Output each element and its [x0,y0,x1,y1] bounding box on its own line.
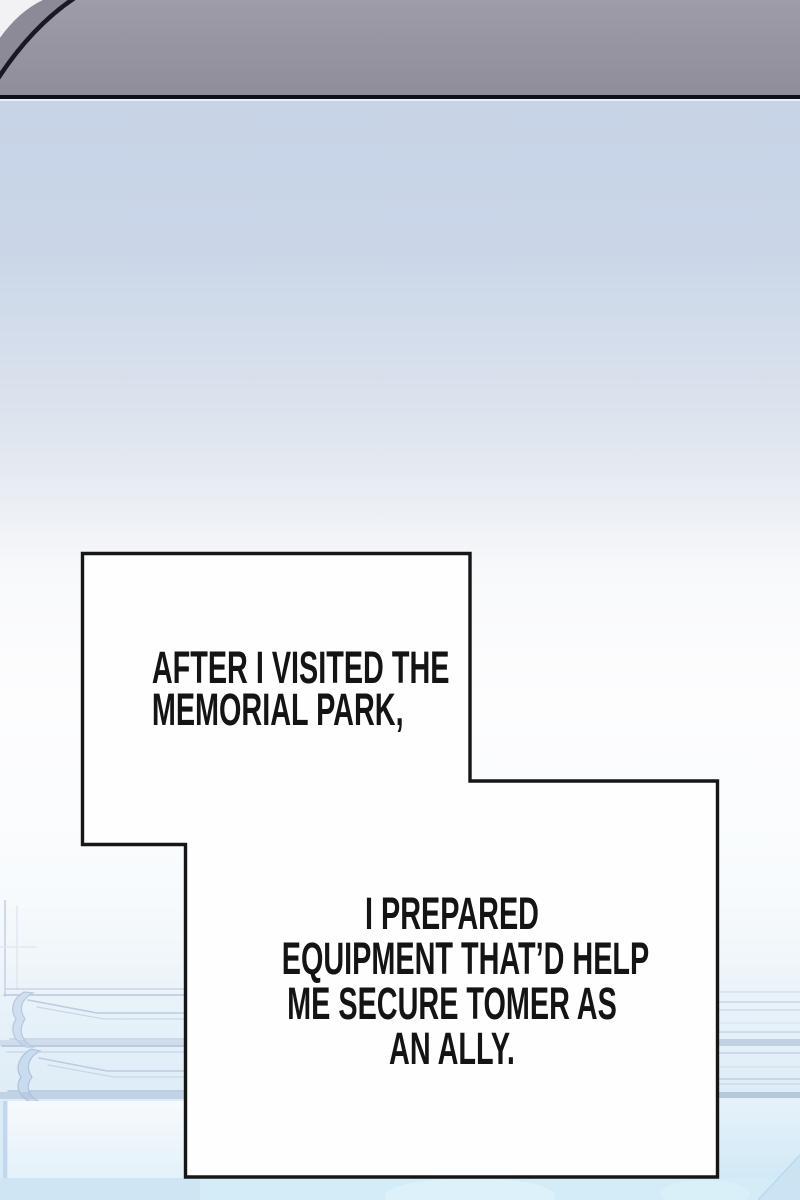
caption-line: ME SECURE TOMER AS [282,981,622,1026]
caption-line: MEMORIAL PARK, [152,689,400,731]
caption-line: I PREPARED [282,891,622,936]
caption-line: AFTER I VISITED THE [152,647,400,689]
caption-text-2: I PREPARED EQUIPMENT THAT’D HELP ME SECU… [186,891,718,1071]
caption-line: AN ALLY. [282,1026,622,1071]
caption-text-1: AFTER I VISITED THE MEMORIAL PARK, [82,647,470,731]
comic-panel: AFTER I VISITED THE MEMORIAL PARK, I PRE… [0,0,800,1200]
caption-line: EQUIPMENT THAT’D HELP [282,936,622,981]
